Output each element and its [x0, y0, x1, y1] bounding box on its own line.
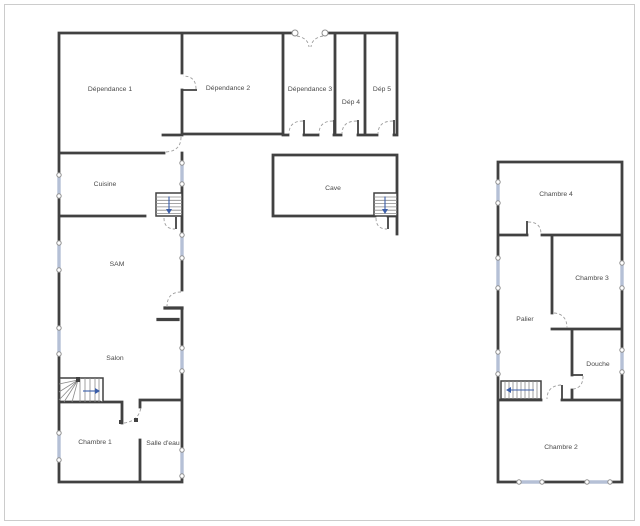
room-label-dependance-2: Dépendance 2 [206, 85, 250, 92]
window [496, 350, 500, 376]
window [517, 480, 544, 484]
room-label-chambre-3: Chambre 3 [575, 275, 609, 282]
window [57, 241, 61, 272]
room-label-dep-5: Dép 5 [373, 86, 391, 93]
window [620, 348, 624, 374]
door-leaves-first [527, 221, 583, 399]
window [180, 448, 184, 478]
first-floor-plan: Chambre 4 Chambre 3 Palier Douche Chambr… [496, 162, 624, 484]
window [180, 233, 184, 260]
room-label-chambre-1: Chambre 1 [78, 439, 112, 446]
floor-plan-page: Dépendance 1 Dépendance 2 Dépendance 3 D… [0, 0, 640, 526]
window [180, 161, 184, 186]
room-label-cuisine: Cuisine [94, 181, 117, 188]
chimney-stubs [158, 308, 182, 320]
stairs-palier [501, 381, 541, 399]
room-label-dependance-1: Dépendance 1 [88, 86, 132, 93]
entry-door-hinge-right [322, 30, 328, 36]
stairs-cuisine [156, 193, 182, 216]
stairs-cave [374, 193, 397, 216]
window [585, 480, 612, 484]
room-label-salon: Salon [106, 355, 124, 362]
room-label-dependance-3: Dépendance 3 [288, 86, 332, 93]
room-label-salle-deau: Salle d'eau [146, 440, 180, 447]
room-label-cave: Cave [325, 185, 341, 192]
stairs-salon [59, 377, 103, 402]
room-label-dep-4: Dép 4 [342, 99, 360, 106]
room-label-douche: Douche [586, 361, 610, 368]
room-label-palier: Palier [516, 316, 534, 323]
window [496, 180, 500, 205]
window [496, 256, 500, 290]
floor-plan-drawing: Dépendance 1 Dépendance 2 Dépendance 3 D… [0, 0, 640, 526]
ground-floor-plan: Dépendance 1 Dépendance 2 Dépendance 3 D… [57, 30, 397, 482]
door-leaves-ground [176, 90, 394, 229]
door-hinge-marker [134, 418, 138, 422]
window [620, 261, 624, 290]
door-arcs-ground [124, 36, 393, 423]
window [180, 346, 184, 373]
entry-door-hinge-left [292, 30, 298, 36]
room-label-chambre-2: Chambre 2 [544, 444, 578, 451]
room-label-chambre-4: Chambre 4 [539, 191, 573, 198]
window [57, 326, 61, 356]
window [57, 431, 61, 462]
room-label-sam: SAM [110, 261, 125, 268]
window [57, 173, 61, 198]
door-arcs-first [528, 222, 583, 399]
door-hinge-marker [119, 420, 123, 424]
